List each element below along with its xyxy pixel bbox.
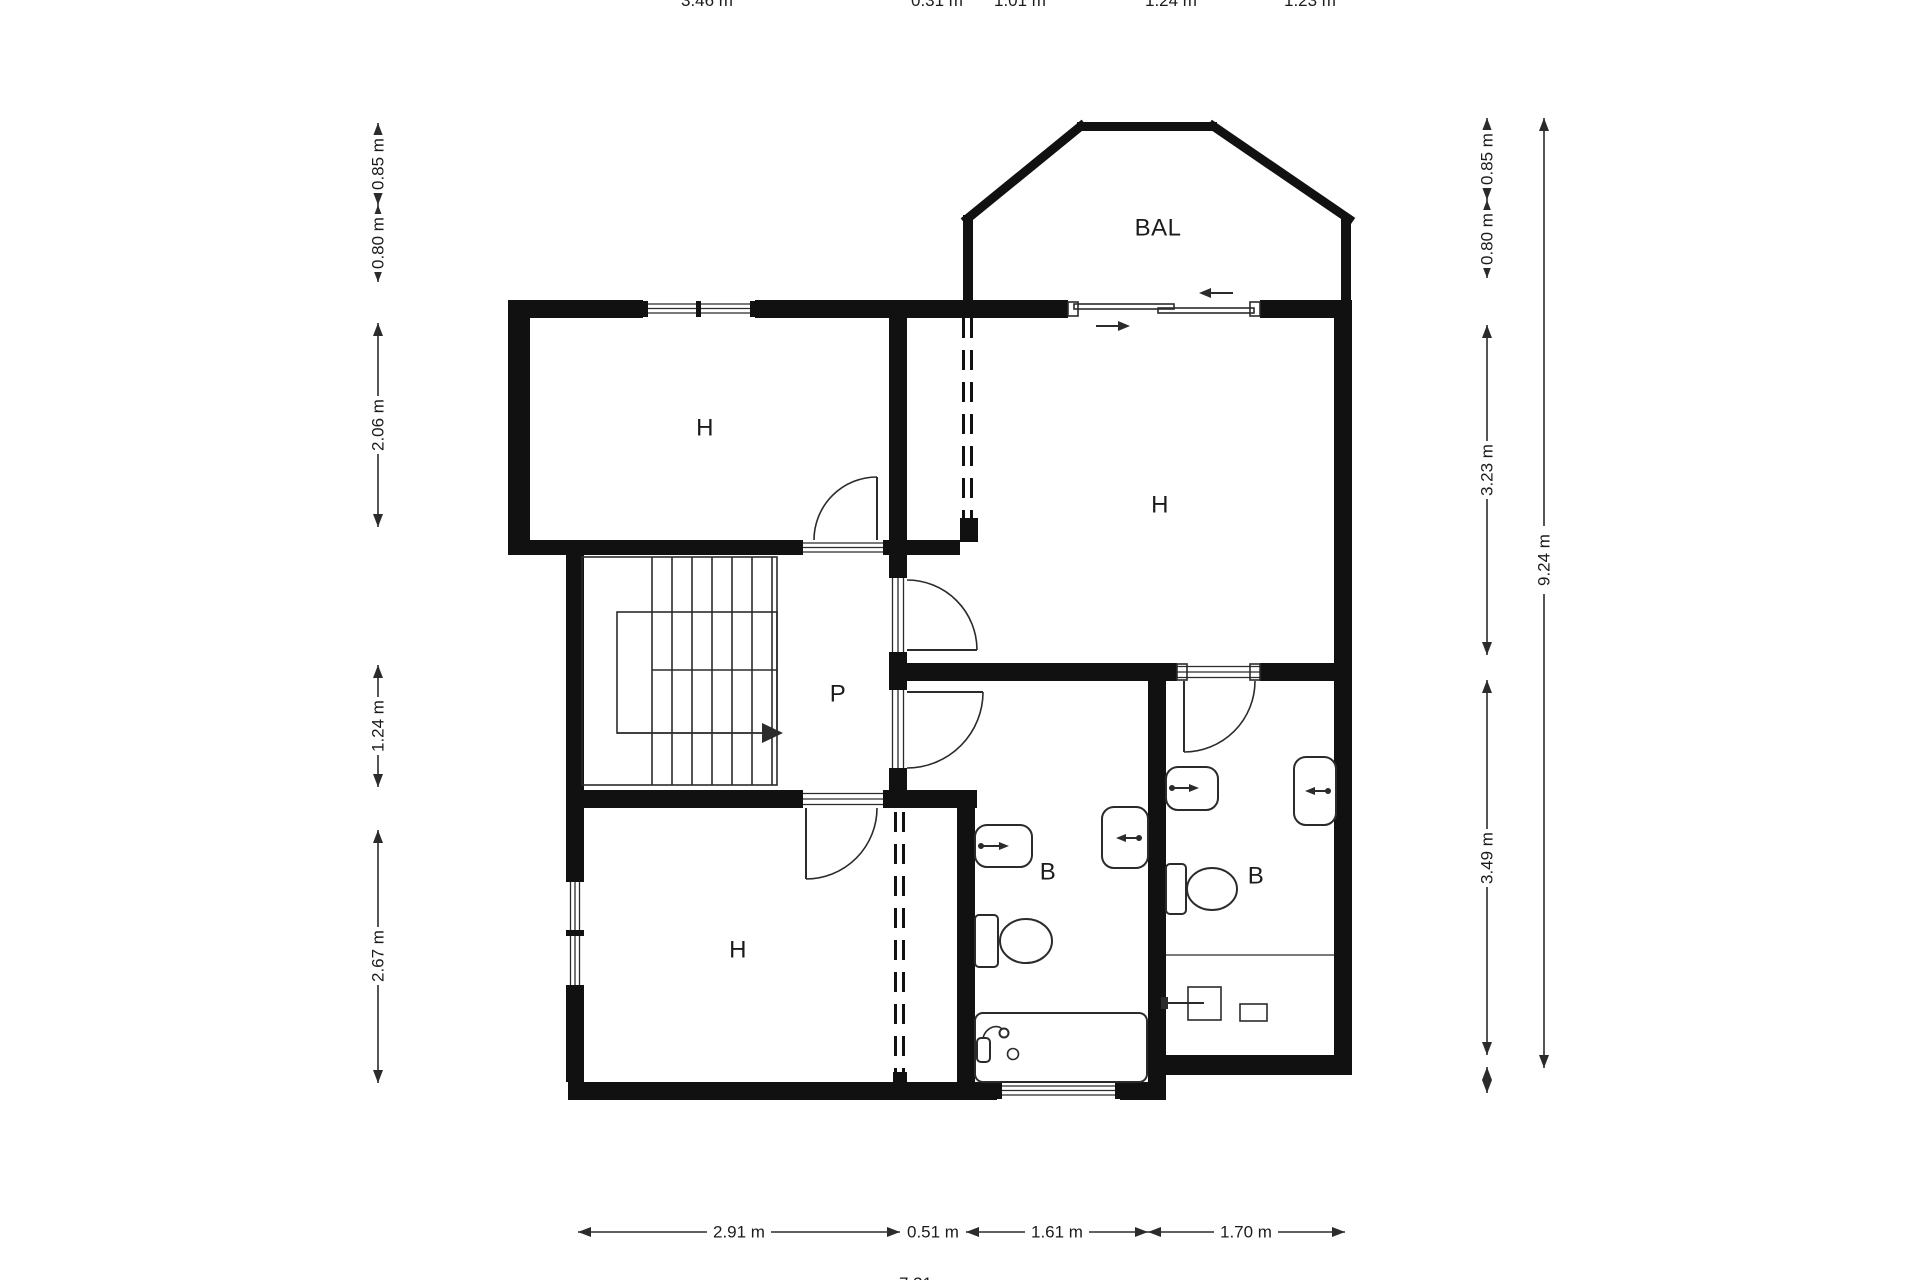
toilet-icon <box>975 915 1052 967</box>
dimension-label: 0.85 m <box>369 138 388 190</box>
sink-icon <box>1166 767 1218 810</box>
cropped-dimension-label: 7.31 m <box>899 1274 951 1280</box>
balcony-dashed-opening <box>964 318 972 520</box>
sink-icon <box>1102 807 1148 868</box>
walls <box>508 300 1352 1100</box>
balcony-wall-top <box>1077 122 1217 131</box>
window-cap <box>566 930 584 936</box>
wall-bottom-outer <box>568 1082 997 1100</box>
wall-top <box>508 300 643 318</box>
cropped-dimension-label: 0.31 m <box>911 0 963 10</box>
room-label-hallway: P <box>830 681 847 708</box>
door-swing <box>1177 663 1260 752</box>
floor-plan-drawing: BAL H H H P B B 0.85 m 0.80 m 2.06 m 1.2… <box>0 0 1920 1280</box>
dimension-label: 1.24 m <box>369 700 388 752</box>
wall-central <box>889 300 907 578</box>
wall-bath-top <box>907 663 1177 681</box>
room-label-bedroom-top-left: H <box>696 415 714 442</box>
door-swing <box>803 477 883 555</box>
slide-arrow-left-icon <box>1199 288 1211 298</box>
door-swing <box>803 790 883 879</box>
dimension-left-column: 0.85 m 0.80 m 2.06 m 1.24 m 2.67 m <box>368 123 388 1083</box>
dimension-label: 1.61 m <box>1031 1223 1083 1242</box>
wall-bedroom-tl-bottom <box>883 540 960 555</box>
cropped-dimension-label: 1.24 m <box>1145 0 1197 10</box>
room-label-bedroom-top-right: H <box>1151 492 1169 519</box>
sink-icon <box>1294 757 1336 825</box>
window <box>997 1083 1120 1099</box>
dimension-bottom-row: 2.91 m 0.51 m 1.61 m 1.70 m <box>578 1222 1345 1242</box>
wall-bath-mid-left <box>957 808 975 1082</box>
shower-icon <box>1161 955 1334 1021</box>
dimension-right-total: 9.24 m <box>1534 118 1554 1068</box>
wall-post <box>960 518 978 542</box>
floor-plan-page: BAL H H H P B B 0.85 m 0.80 m 2.06 m 1.2… <box>0 0 1920 1280</box>
window-cap <box>566 876 584 882</box>
dimension-label: 2.67 m <box>369 930 388 982</box>
wall-hall-bottom <box>566 790 803 808</box>
door-swing <box>889 690 983 768</box>
wall-right-outer <box>1334 300 1352 1075</box>
wall-bath-right-bottom <box>1166 1055 1352 1075</box>
door-swing <box>889 578 977 652</box>
slide-arrow-right-icon <box>1118 321 1130 331</box>
cropped-dimension-label: 1.01 m <box>994 0 1046 10</box>
wall-left-outer <box>508 300 530 555</box>
dimension-label: 0.85 m <box>1478 133 1497 185</box>
dimension-label: 0.51 m <box>907 1223 959 1242</box>
window-cap <box>566 985 584 991</box>
dimension-right-column: 0.85 m 0.80 m 3.23 m 3.49 m <box>1477 118 1497 1093</box>
room-label-bathroom-right: B <box>1248 863 1265 890</box>
staircase <box>582 557 783 785</box>
wall-central <box>889 652 907 690</box>
sliding-partition <box>896 812 904 1078</box>
wall-bedroom-tl-bottom <box>508 540 803 555</box>
balcony-walls <box>963 122 1351 520</box>
wall-bath-top <box>1260 663 1352 681</box>
dimension-label: 2.06 m <box>369 399 388 451</box>
wall-central <box>889 768 907 790</box>
balcony-sliding-door <box>1068 288 1260 331</box>
toilet-icon <box>1166 864 1237 914</box>
wall-bottom-outer <box>1120 1082 1166 1100</box>
dimension-label: 2.91 m <box>713 1223 765 1242</box>
window <box>643 301 755 317</box>
room-label-balcony: BAL <box>1135 215 1182 242</box>
dimension-label: 0.80 m <box>369 217 388 269</box>
wall-bedroom-b-left <box>566 991 584 1082</box>
dimension-label: 1.70 m <box>1220 1223 1272 1242</box>
wall-top <box>755 300 907 318</box>
cropped-dimension-label: 3.46 m <box>681 0 733 10</box>
wall-hall-bottom <box>883 790 977 808</box>
cropped-dimension-label: 1.23 m <box>1284 0 1336 10</box>
dimension-label: 0.80 m <box>1478 213 1497 265</box>
wall-bath-divider <box>1148 663 1166 1100</box>
sink-icon <box>975 825 1032 867</box>
balcony-wall-right <box>1341 215 1351 310</box>
wall-top-right <box>907 300 1068 318</box>
dimension-label: 3.49 m <box>1478 832 1497 884</box>
dimension-label: 9.24 m <box>1535 534 1554 586</box>
dimension-label: 3.23 m <box>1478 444 1497 496</box>
balcony-wall-left <box>963 215 973 317</box>
bathtub-icon <box>975 1013 1147 1082</box>
wall-bedroom-b-left <box>566 808 584 876</box>
balcony-wall-angled-right <box>1213 126 1349 219</box>
room-label-bedroom-bottom: H <box>729 937 747 964</box>
balcony-wall-angled-left <box>967 126 1081 219</box>
room-label-bathroom-middle: B <box>1040 859 1057 886</box>
